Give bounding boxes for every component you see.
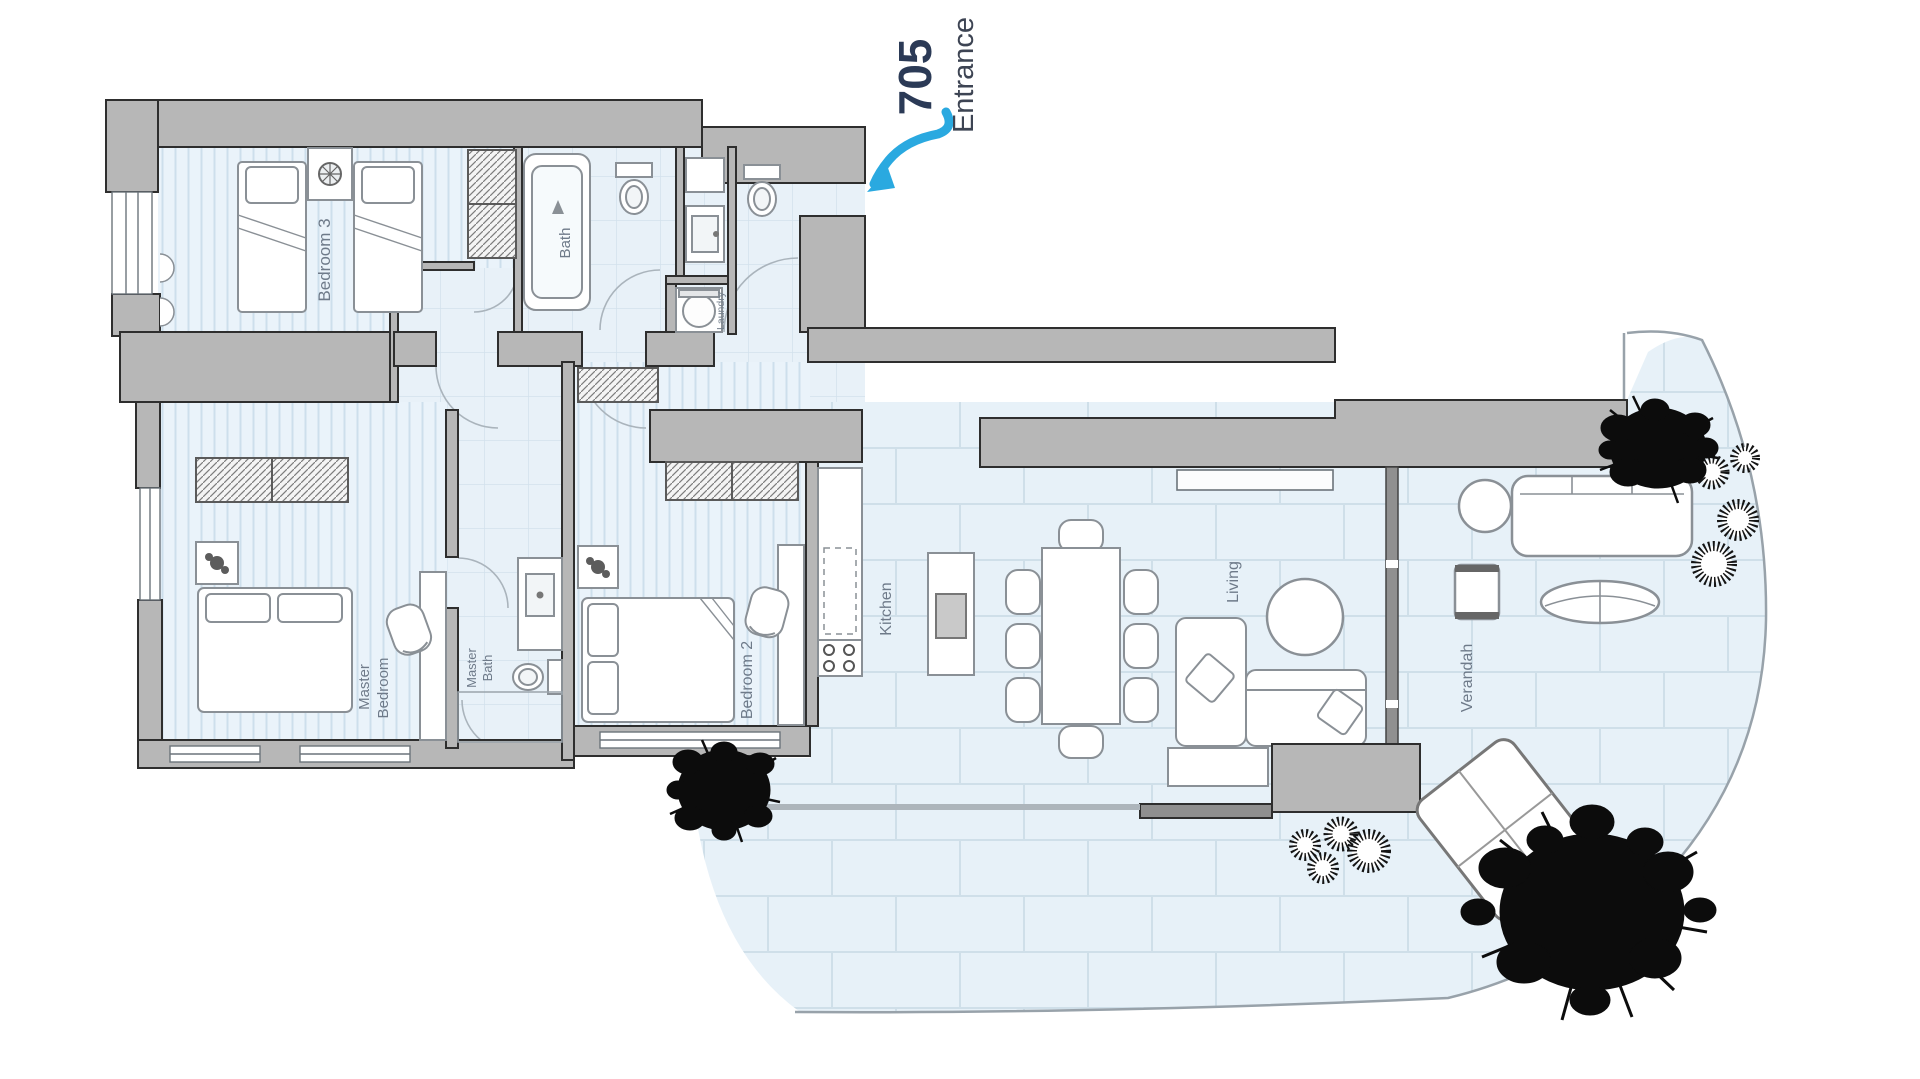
tree	[667, 740, 780, 842]
planter-block	[1272, 744, 1420, 812]
master-bath-label-line1: Master	[464, 647, 479, 687]
wardrobe	[578, 368, 658, 402]
floor-plan-drawing: 705 Entrance Bedroom 3 Bath Laundry Mast…	[0, 0, 1920, 1079]
tv-console	[1177, 470, 1333, 490]
side-table	[1459, 480, 1511, 532]
pillow	[588, 662, 618, 714]
pillow	[362, 167, 414, 203]
dining-table	[1042, 548, 1120, 724]
toilet-tank	[744, 165, 780, 179]
dining-chair	[1006, 678, 1040, 722]
bedroom-3-window	[112, 192, 152, 294]
niche-cabinet	[686, 158, 724, 192]
master-bedroom-label-line1: Master	[356, 664, 373, 710]
bath-label: Bath	[557, 228, 574, 259]
dining-chair	[1006, 570, 1040, 614]
dining-chair	[1124, 570, 1158, 614]
stove	[818, 640, 862, 676]
pillow	[206, 594, 270, 622]
living-label: Living	[1225, 561, 1242, 603]
dining-chair	[1006, 624, 1040, 668]
toilet-tank	[548, 660, 562, 694]
floor-plan-page: 705 Entrance Bedroom 3 Bath Laundry Mast…	[0, 0, 1920, 1079]
verandah-label: Verandah	[1459, 644, 1476, 713]
bedroom-3-label: Bedroom 3	[315, 218, 334, 301]
dining-chair	[1059, 726, 1103, 758]
pillow	[278, 594, 342, 622]
dining-chair	[1124, 624, 1158, 668]
laundry-label: Laundry	[715, 291, 727, 330]
pillow	[588, 604, 618, 656]
entrance-label: Entrance	[948, 17, 980, 133]
entrance-arrow-icon	[867, 112, 949, 192]
unit-number: 705	[889, 39, 941, 116]
side-console	[1168, 748, 1268, 786]
desk	[778, 545, 804, 725]
master-bath-label-line2: Bath	[480, 655, 495, 682]
toilet-tank	[616, 163, 652, 177]
pillow	[246, 167, 298, 203]
bedroom-2-label: Bedroom 2	[739, 641, 756, 719]
coffee-table	[1267, 579, 1343, 655]
kitchen-label: Kitchen	[878, 582, 895, 635]
desk	[420, 572, 446, 740]
island-sink	[936, 594, 966, 638]
dining-chair	[1124, 678, 1158, 722]
master-bedroom-label-line2: Bedroom	[375, 658, 392, 719]
outdoor-pouf	[1455, 565, 1499, 619]
